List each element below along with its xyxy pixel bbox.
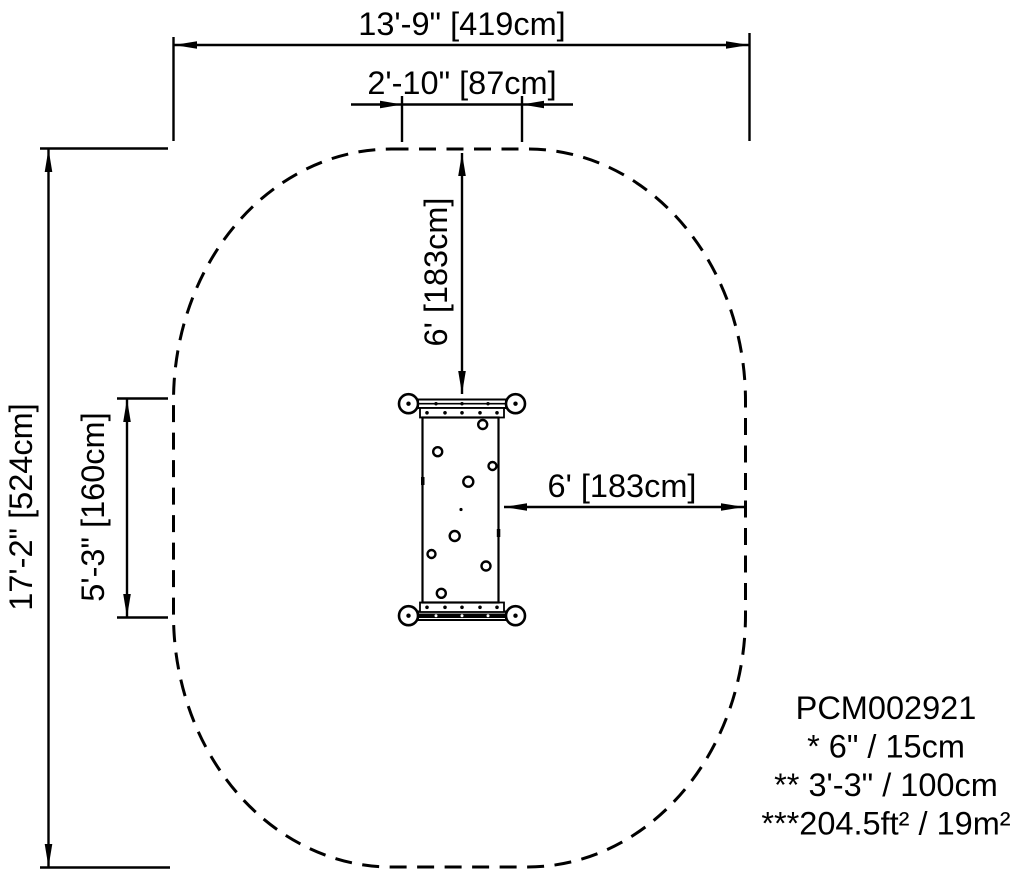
top-clearance-label: 6' [183cm] <box>418 198 454 347</box>
edge-bolt <box>421 477 425 485</box>
model-number: PCM002921 <box>796 690 977 726</box>
arrowhead-down-icon <box>458 371 466 394</box>
overall-width-label: 13'-9" [419cm] <box>358 6 565 42</box>
arrowhead-left-icon <box>522 101 544 109</box>
equipment-plan <box>399 394 525 625</box>
overall-height-label: 17'-2" [524cm] <box>3 403 39 610</box>
legend-note-1: * 6" / 15cm <box>807 729 965 765</box>
arrowhead-up-icon <box>45 149 53 172</box>
dimension-equipment-length: 5'-3" [160cm] <box>75 399 168 618</box>
edge-bolt <box>497 529 501 537</box>
dimension-right-clearance: 6' [183cm] <box>504 468 744 511</box>
legend-note-2: ** 3'-3" / 100cm <box>774 767 998 803</box>
top-support-bar <box>418 400 506 409</box>
arrowhead-down-icon <box>45 844 53 867</box>
equipment-length-label: 5'-3" [160cm] <box>75 412 111 601</box>
legend-block: PCM002921 * 6" / 15cm ** 3'-3" / 100cm *… <box>761 690 1010 842</box>
arrowhead-right-icon <box>721 503 744 511</box>
dimension-top-clearance: 6' [183cm] <box>418 153 466 394</box>
arrowhead-left-icon <box>504 503 527 511</box>
arrowhead-down-icon <box>123 594 131 617</box>
site-plan-svg: 13'-9" [419cm] 2'-10" [87cm] 17'-2" [524… <box>0 0 1024 877</box>
arrowhead-up-icon <box>458 153 466 176</box>
top-flange <box>420 408 504 418</box>
arrowhead-right-icon <box>726 41 749 49</box>
inner-width-label: 2'-10" [87cm] <box>367 65 556 101</box>
plan-drawing-page: 13'-9" [419cm] 2'-10" [87cm] 17'-2" [524… <box>0 0 1024 877</box>
wall-panel <box>421 418 500 603</box>
arrowhead-right-icon <box>380 101 402 109</box>
legend-note-3: ***204.5ft² / 19m² <box>761 806 1010 842</box>
bottom-flange <box>420 603 504 613</box>
arrowhead-left-icon <box>174 41 197 49</box>
arrowhead-up-icon <box>123 399 131 422</box>
right-clearance-label: 6' [183cm] <box>548 468 697 504</box>
dimension-inner-width: 2'-10" [87cm] <box>351 65 573 142</box>
